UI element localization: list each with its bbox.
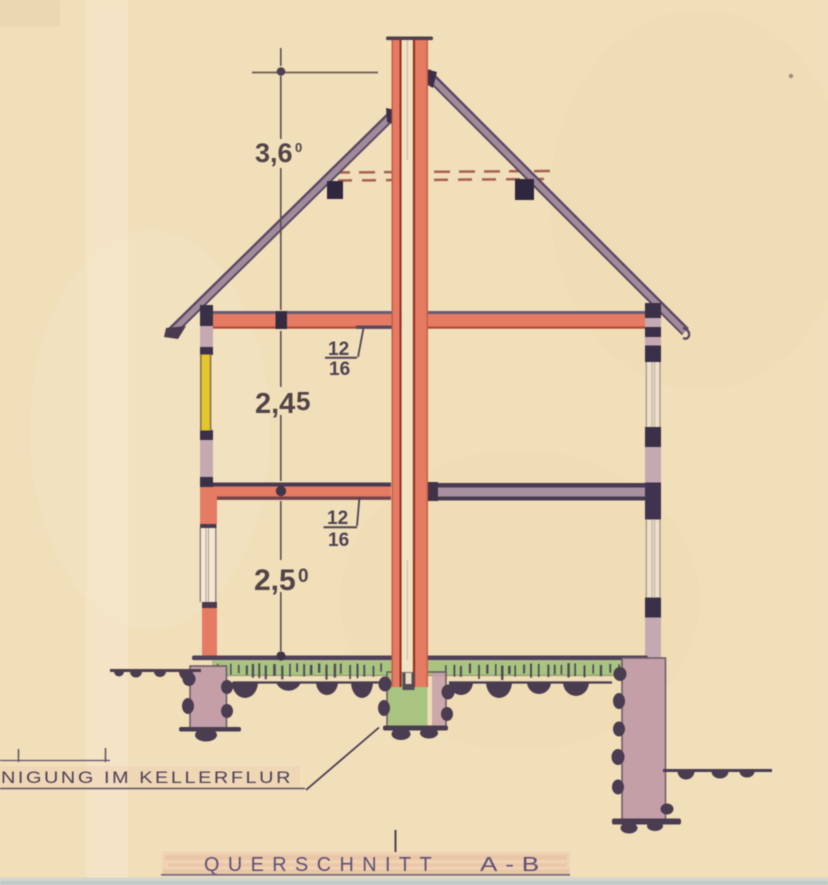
svg-text:3,6: 3,6 xyxy=(255,138,293,168)
svg-text:NIGUNG IM KELLERFLUR: NIGUNG IM KELLERFLUR xyxy=(1,768,293,787)
svg-text:QUERSCHNITT: QUERSCHNITT xyxy=(204,854,440,876)
svg-text:2,4: 2,4 xyxy=(255,388,295,420)
svg-text:A-B: A-B xyxy=(480,854,547,876)
svg-text:2,5: 2,5 xyxy=(254,564,296,597)
svg-text:0: 0 xyxy=(298,566,309,587)
svg-text:5: 5 xyxy=(296,386,310,416)
svg-text:12: 12 xyxy=(327,508,348,529)
svg-text:16: 16 xyxy=(328,530,349,551)
svg-text:0: 0 xyxy=(295,140,302,155)
svg-text:16: 16 xyxy=(329,359,350,380)
